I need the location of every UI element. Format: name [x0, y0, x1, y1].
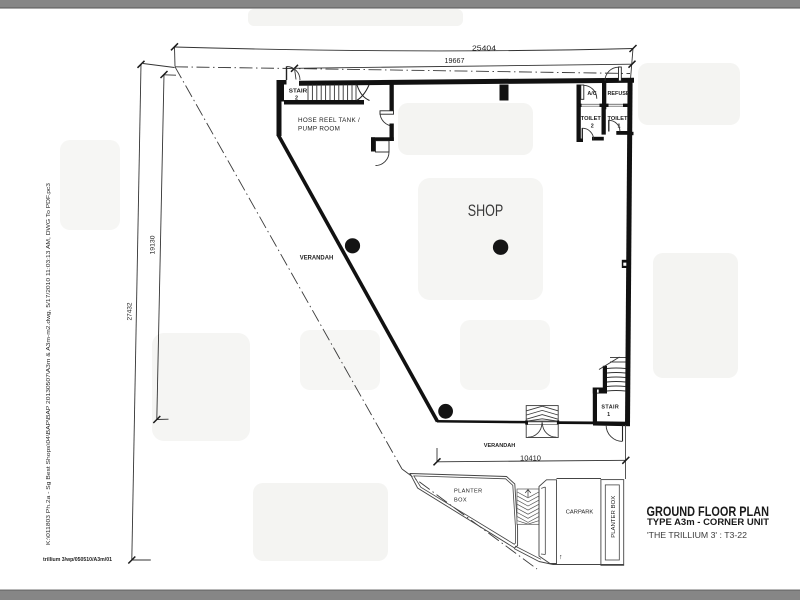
- svg-text:TYPE A3m - CORNER UNIT: TYPE A3m - CORNER UNIT: [647, 517, 770, 527]
- svg-text:'THE TRILLIUM 3' : T3-22: 'THE TRILLIUM 3' : T3-22: [647, 531, 747, 540]
- svg-text:27432: 27432: [127, 302, 134, 320]
- svg-text:1: 1: [607, 412, 610, 418]
- svg-text:BOX: BOX: [454, 498, 467, 504]
- svg-text:VERANDAH: VERANDAH: [484, 443, 516, 449]
- svg-text:REFUSE: REFUSE: [608, 91, 630, 97]
- svg-text:TOILET: TOILET: [581, 116, 602, 122]
- svg-text:CARPARK: CARPARK: [566, 510, 594, 516]
- svg-text:STAIR: STAIR: [601, 405, 619, 411]
- svg-text:PLANTER BOX: PLANTER BOX: [611, 496, 617, 538]
- svg-text:STAIR: STAIR: [289, 89, 308, 95]
- svg-text:TOILET: TOILET: [608, 116, 629, 122]
- svg-text:PLANTER: PLANTER: [454, 489, 483, 495]
- svg-text:HOSE REEL TANK /: HOSE REEL TANK /: [298, 117, 360, 124]
- svg-text:↑: ↑: [559, 554, 563, 561]
- svg-text:25404: 25404: [472, 44, 496, 53]
- svg-text:2: 2: [295, 95, 298, 101]
- svg-text:PUMP ROOM: PUMP ROOM: [298, 126, 340, 133]
- svg-text:1: 1: [618, 124, 621, 130]
- svg-text:SHOP: SHOP: [468, 202, 504, 220]
- svg-text:2: 2: [591, 124, 594, 130]
- svg-text:19130: 19130: [150, 235, 157, 254]
- svg-text:10410: 10410: [520, 453, 541, 462]
- svg-text:19667: 19667: [445, 56, 465, 65]
- svg-text:trillium 3/wp/050510/A3m/01: trillium 3/wp/050510/A3m/01: [43, 557, 112, 563]
- svg-text:VERANDAH: VERANDAH: [300, 255, 334, 262]
- svg-text:A/C: A/C: [587, 91, 596, 97]
- svg-text:K:\011803 Ph.2a - Sg Best Shop: K:\011803 Ph.2a - Sg Best Shops\04\BAP\B…: [46, 183, 52, 545]
